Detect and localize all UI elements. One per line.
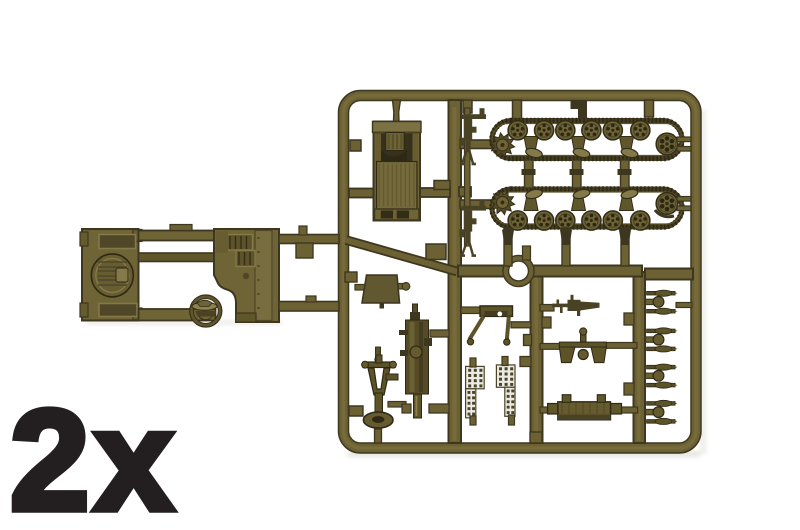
svg-text:2x: 2x: [10, 382, 178, 530]
